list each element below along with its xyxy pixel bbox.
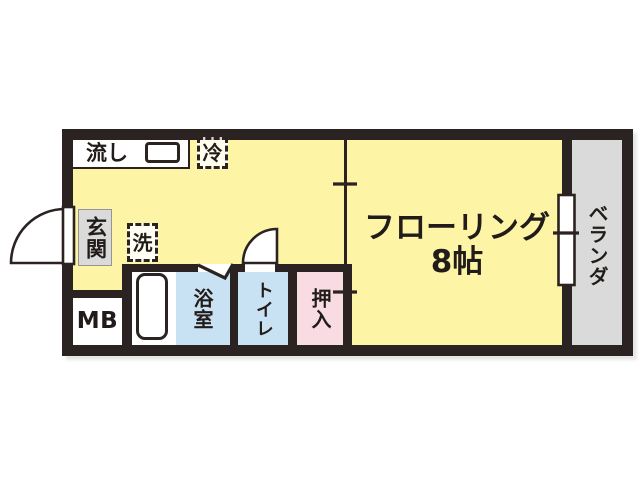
refrigerator-label: 冷 <box>197 139 228 167</box>
kitchen-room-partition <box>344 140 347 265</box>
wall-closet-room <box>343 264 352 345</box>
wall-toilet-closet <box>288 264 297 345</box>
bathroom-label: 浴室 <box>182 276 222 342</box>
closet-label: 押入 <box>300 276 340 342</box>
main-room-label: フローリング 8帖 <box>352 196 562 294</box>
bathtub-icon <box>136 273 168 340</box>
entrance-door-swing-icon <box>11 209 65 263</box>
washer-label: 洗 <box>127 226 158 259</box>
meter-box-top-wall <box>73 290 122 298</box>
veranda-label: ベランダ <box>576 198 618 292</box>
veranda-wall <box>562 140 572 345</box>
sink-basin-icon <box>145 142 180 163</box>
wall-bathroom-toilet <box>230 264 238 345</box>
floor-plan: 流し 冷 洗 玄関 MB 浴室 トイレ 押入 フローリング 8帖 ベランダ <box>0 0 640 480</box>
toilet-label: トイレ <box>243 274 283 344</box>
main-room-size: 8帖 <box>431 245 484 279</box>
entrance-door-opening <box>62 207 73 265</box>
sink-label: 流し <box>78 141 136 166</box>
wall-mb-bathroom <box>122 264 132 345</box>
main-room-name: フローリング <box>364 211 550 245</box>
entrance-label: 玄関 <box>78 211 112 264</box>
meter-box-label: MB <box>73 300 122 343</box>
